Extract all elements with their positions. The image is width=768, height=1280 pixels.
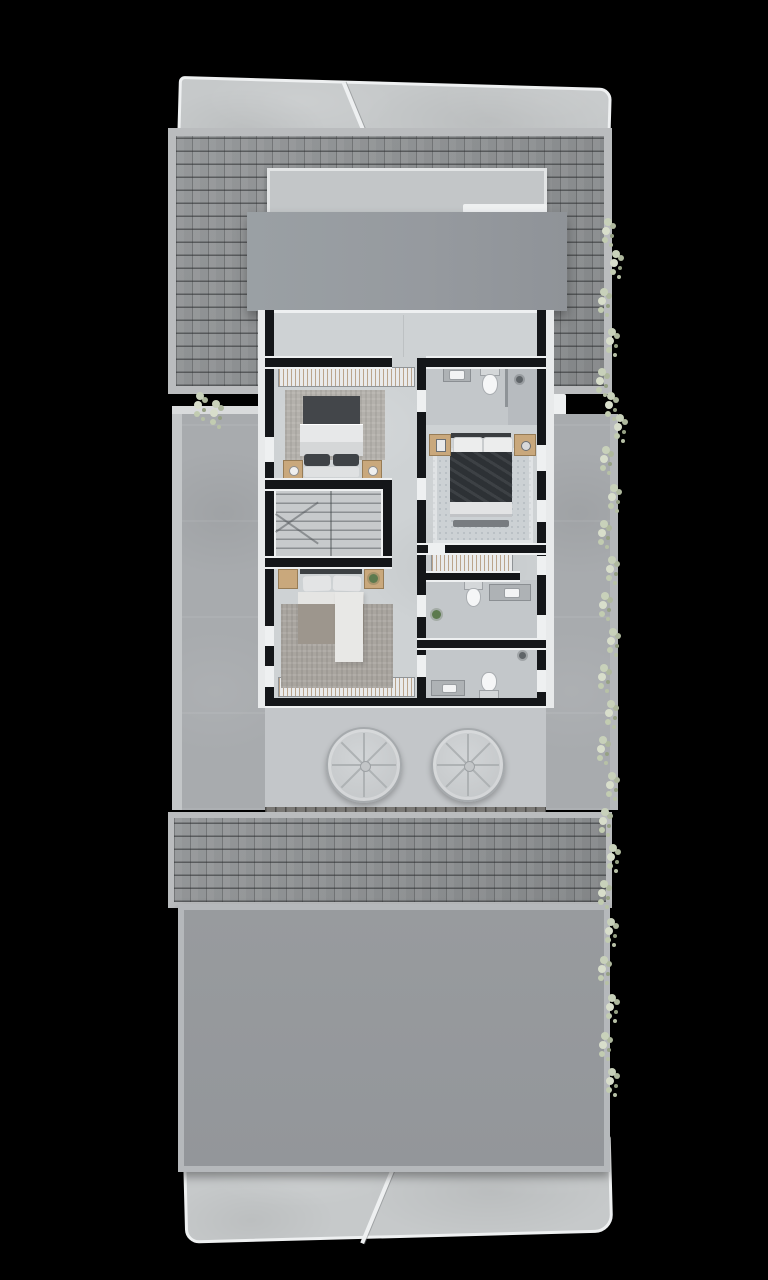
bedroom-1-bed-blanket <box>303 396 360 426</box>
floor-plan-render <box>0 0 768 1280</box>
window-opening <box>265 626 274 646</box>
sink-basin <box>449 370 465 380</box>
bedroom-1-pillow-white <box>304 467 359 477</box>
shower-head <box>519 652 526 659</box>
bathroom-1-shower-divider <box>505 367 508 407</box>
vegetation-cluster <box>608 1068 616 1076</box>
bedroom-3-nightstand <box>514 434 536 456</box>
vegetation-cluster <box>600 664 608 672</box>
vegetation-cluster <box>609 844 617 852</box>
shower-head <box>516 376 523 383</box>
lamp <box>368 466 378 476</box>
hallway-wall-left-segment <box>265 358 392 367</box>
vegetation-cluster <box>600 288 608 296</box>
exterior-wall-face-right <box>546 310 554 708</box>
bedroom-3-foot-blanket <box>450 502 512 517</box>
bedroom-1-pillow <box>304 454 330 466</box>
staircase <box>274 489 383 558</box>
lamp <box>289 466 299 476</box>
interior-top-trim <box>265 310 546 313</box>
door-opening <box>417 595 426 617</box>
bathroom-3-toilet <box>481 672 497 692</box>
vegetation-cluster <box>610 484 618 492</box>
vegetation-cluster <box>608 556 616 564</box>
stair-winder-line <box>275 513 318 544</box>
vegetation-cluster <box>196 392 204 400</box>
vegetation-cluster <box>212 400 220 408</box>
flat-roof-lower <box>178 904 610 1172</box>
vegetation-cluster <box>601 592 609 600</box>
stair-center-seam <box>330 489 332 558</box>
door-opening <box>265 666 274 687</box>
bathroom-1-shower-floor <box>508 367 537 425</box>
vegetation-cluster <box>601 1032 609 1040</box>
closet-south-wall <box>426 573 520 580</box>
bedroom-3-bench <box>453 520 509 527</box>
sink-basin <box>442 684 457 693</box>
vegetation-cluster <box>601 808 609 816</box>
bedroom-2-nightstand <box>364 569 384 589</box>
stair-east-wall <box>383 489 392 567</box>
decor-item <box>436 439 446 452</box>
vegetation-cluster <box>607 918 615 926</box>
door-opening <box>417 478 426 500</box>
bathroom-1-sink-counter <box>443 367 471 382</box>
vegetation-cluster <box>604 218 612 226</box>
bedroom-1-nightstand <box>362 460 382 480</box>
roof-fan-vent <box>431 728 505 802</box>
window-opening <box>537 615 546 638</box>
stair-south-wall <box>265 558 392 567</box>
vegetation-cluster <box>609 628 617 636</box>
exterior-wall-left <box>265 310 274 706</box>
bedroom-2-nightstand <box>278 569 298 589</box>
fan-hub <box>464 761 475 772</box>
vegetation-cluster <box>616 414 624 422</box>
bathroom-3-sink-counter <box>431 680 465 696</box>
bedroom-3-duvet <box>450 452 512 502</box>
vegetation-cluster <box>608 328 616 336</box>
bedroom-2-blanket-side <box>335 592 363 662</box>
vegetation-cluster <box>602 446 610 454</box>
window-opening <box>537 556 546 575</box>
vegetation-cluster <box>607 392 615 400</box>
roof-fan-vent <box>326 727 402 803</box>
bathroom-2-south-wall <box>417 640 546 648</box>
bathroom-2-toilet <box>466 588 481 607</box>
flat-roof-upper <box>247 212 567 311</box>
bedroom-1-wardrobe <box>278 367 415 387</box>
vegetation-cluster <box>608 772 616 780</box>
window-opening <box>265 437 274 462</box>
bedroom-2-pillow <box>303 576 332 592</box>
door-opening <box>417 655 426 677</box>
bedroom-3-nightstand <box>429 434 451 456</box>
fan-hub <box>360 761 371 772</box>
vegetation-cluster <box>599 736 607 744</box>
vegetation-cluster <box>608 994 616 1002</box>
potted-plant <box>432 610 441 619</box>
bedroom-2-pillow <box>333 576 362 592</box>
hallway-floor-seam <box>403 315 404 357</box>
exterior-wall-south <box>265 698 546 706</box>
closet-wardrobe <box>431 552 513 573</box>
hallway-wall-right-segment <box>426 358 546 367</box>
bathroom-1-toilet <box>482 374 498 395</box>
vegetation-cluster <box>600 956 608 964</box>
vegetation-cluster <box>607 700 615 708</box>
bedroom-1-nightstand <box>283 460 303 480</box>
door-opening <box>537 670 546 692</box>
decor-item <box>521 441 531 451</box>
terrace-right <box>546 414 618 810</box>
vegetation-cluster <box>600 880 608 888</box>
bedroom-2-headboard <box>300 567 362 574</box>
bedroom-1-bed-duvet <box>300 424 363 456</box>
bedroom-1-south-wall <box>265 480 392 489</box>
vegetation-cluster <box>600 520 608 528</box>
window-opening <box>537 500 546 522</box>
vegetation-cluster <box>598 368 606 376</box>
vegetation-cluster <box>612 250 620 258</box>
window-opening <box>537 445 546 471</box>
potted-plant <box>369 574 378 583</box>
terrace-left <box>172 414 265 810</box>
door-opening <box>417 390 426 412</box>
roof-lower <box>168 812 612 908</box>
closet-door-opening <box>428 545 445 553</box>
bedroom-1-pillow <box>333 454 359 466</box>
sink-basin <box>504 588 520 598</box>
interior-floor-plan <box>265 310 546 706</box>
bathroom-2-sink-counter <box>489 584 531 601</box>
